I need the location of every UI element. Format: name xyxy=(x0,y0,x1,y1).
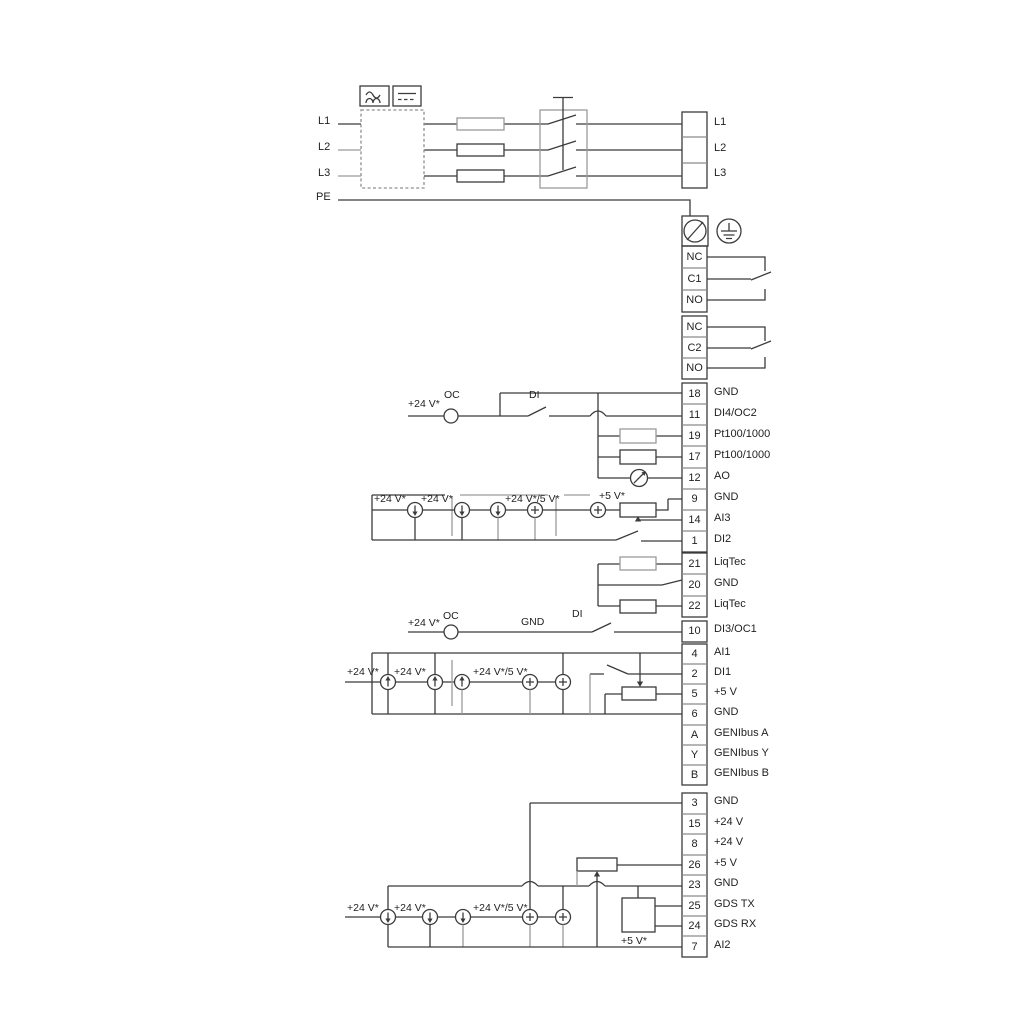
pt100-resistor-icon xyxy=(620,450,656,464)
terminal-label: DI1 xyxy=(714,667,731,678)
terminal-label: GND xyxy=(714,878,738,889)
terminal-number: 14 xyxy=(682,513,707,527)
liqtec-sensor-icon xyxy=(620,600,656,613)
potentiometer-icon xyxy=(622,687,656,700)
supply-note: +24 V* xyxy=(394,903,426,914)
terminal-number: 5 xyxy=(682,687,707,701)
terminal-label: AI1 xyxy=(714,647,731,658)
supply-note: +24 V*/5 V* xyxy=(505,494,560,505)
mains-output-label: L2 xyxy=(714,143,726,154)
terminal-number: 18 xyxy=(682,387,707,401)
wiring-diagram xyxy=(0,0,1024,1024)
open-collector-icon xyxy=(444,409,458,423)
liqtec-sensor-circuit xyxy=(598,557,682,613)
terminal-label: Pt100/1000 xyxy=(714,429,770,440)
pe-screw-terminal-icon xyxy=(682,216,708,246)
supply-note: +24 V* xyxy=(394,667,426,678)
terminal-label: LiqTec xyxy=(714,557,746,568)
terminal-number: 26 xyxy=(682,858,707,872)
ac-symbol-icon xyxy=(360,86,389,106)
supply-note: +24 V*/5 V* xyxy=(473,903,528,914)
terminal-number: 7 xyxy=(682,940,707,954)
terminal-number: 1 xyxy=(682,534,707,548)
mains-terminal-block xyxy=(682,112,707,188)
main-switch-icon xyxy=(540,98,587,189)
terminal-label: AI3 xyxy=(714,513,731,524)
pe-wire xyxy=(338,200,690,216)
terminal-label: +5 V xyxy=(714,687,737,698)
mains-circuit xyxy=(338,86,741,246)
terminal-label: GND xyxy=(714,492,738,503)
di-note: DI xyxy=(529,390,540,401)
relay2-cell: C2 xyxy=(682,341,707,355)
earth-ground-icon xyxy=(717,219,741,243)
mains-input-label: L3 xyxy=(318,168,330,179)
terminal-label: +24 V xyxy=(714,837,743,848)
terminal-label: GDS RX xyxy=(714,919,756,930)
open-collector-icon xyxy=(444,625,458,639)
fuse-icons xyxy=(457,118,504,182)
supply-note: +24 V* xyxy=(421,494,453,505)
pt100-sensors xyxy=(598,429,682,464)
relay1-cell: NO xyxy=(682,293,707,307)
analog-output-icon xyxy=(598,470,682,487)
ai1-sensor-circuit xyxy=(345,653,682,714)
terminal-label: DI4/OC2 xyxy=(714,408,757,419)
rcd-box xyxy=(361,110,424,188)
supply-note: +24 V*/5 V* xyxy=(473,667,528,678)
terminal-number: 6 xyxy=(682,707,707,721)
oc-note: OC xyxy=(444,390,460,401)
terminal-label: LiqTec xyxy=(714,599,746,610)
terminal-number: 4 xyxy=(682,647,707,661)
supply-note: +24 V* xyxy=(408,618,440,629)
terminal-label: +24 V xyxy=(714,817,743,828)
gnd-note: GND xyxy=(521,617,544,628)
supply-note: +24 V* xyxy=(374,494,406,505)
terminal-number: 21 xyxy=(682,557,707,571)
terminal-number: 2 xyxy=(682,667,707,681)
terminal-number: 8 xyxy=(682,837,707,851)
relay2-cell: NO xyxy=(682,361,707,375)
di-note: DI xyxy=(572,609,583,620)
supply-note: +24 V* xyxy=(347,667,379,678)
relay1-cell: NC xyxy=(682,250,707,264)
terminal-label: GND xyxy=(714,578,738,589)
terminal-number: 3 xyxy=(682,796,707,810)
di3-oc1-circuit xyxy=(408,623,682,639)
terminal-number: A xyxy=(682,728,707,742)
potentiometer-icon xyxy=(577,858,617,871)
terminal-label: GENIbus B xyxy=(714,768,769,779)
di4-oc2-circuit xyxy=(408,393,682,478)
mains-output-label: L3 xyxy=(714,168,726,179)
mains-input-label: L1 xyxy=(318,116,330,127)
relay1-cell: C1 xyxy=(682,272,707,286)
terminal-number: 15 xyxy=(682,817,707,831)
terminal-label: GND xyxy=(714,387,738,398)
supply-note: +5 V* xyxy=(621,936,647,947)
terminal-number: 24 xyxy=(682,919,707,933)
terminal-label: DI2 xyxy=(714,534,731,545)
mains-output-label: L1 xyxy=(714,117,726,128)
supply-note: +5 V* xyxy=(599,491,625,502)
terminal-label: GENIbus A xyxy=(714,728,768,739)
terminal-number: 9 xyxy=(682,492,707,506)
dc-symbol-icon xyxy=(393,86,421,106)
terminal-number: 11 xyxy=(682,408,707,422)
terminal-number: 10 xyxy=(682,624,707,638)
terminal-number: 17 xyxy=(682,450,707,464)
relay2-cell: NC xyxy=(682,320,707,334)
terminal-number: Y xyxy=(682,748,707,762)
potentiometer-icon xyxy=(620,503,656,517)
terminal-number: 20 xyxy=(682,578,707,592)
terminal-number: 25 xyxy=(682,899,707,913)
supply-note: +24 V* xyxy=(408,399,440,410)
terminal-number: 22 xyxy=(682,599,707,613)
terminal-label: GENIbus Y xyxy=(714,748,769,759)
terminal-label: GND xyxy=(714,796,738,807)
mains-input-label: L2 xyxy=(318,142,330,153)
terminal-label: GDS TX xyxy=(714,899,755,910)
oc-note: OC xyxy=(443,611,459,622)
liqtec-sensor-icon xyxy=(620,557,656,570)
terminal-label: DI3/OC1 xyxy=(714,624,757,635)
supply-note: +24 V* xyxy=(347,903,379,914)
terminal-label: +5 V xyxy=(714,858,737,869)
terminal-number: B xyxy=(682,768,707,782)
terminal-label: Pt100/1000 xyxy=(714,450,770,461)
terminal-number: 19 xyxy=(682,429,707,443)
terminal-number: 12 xyxy=(682,471,707,485)
pt100-resistor-icon xyxy=(620,429,656,443)
terminal-label: AO xyxy=(714,471,730,482)
terminal-number: 23 xyxy=(682,878,707,892)
terminal-label: AI2 xyxy=(714,940,731,951)
ai2-sensor-circuit xyxy=(345,803,682,947)
terminal-label: GND xyxy=(714,707,738,718)
mains-input-label: PE xyxy=(316,192,331,203)
gds-module-icon xyxy=(622,898,655,932)
wiring-diagram-page: L1 L2 L3 PE L1 L2 L3 NC C1 NO NC C2 NO 1… xyxy=(0,0,1024,1024)
